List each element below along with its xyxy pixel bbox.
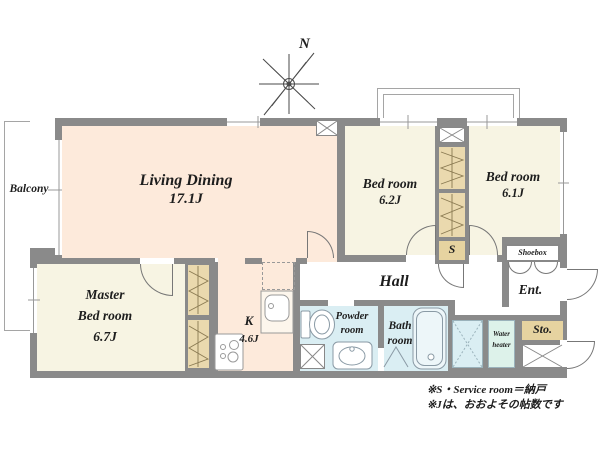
entry-tile xyxy=(452,320,483,368)
door-gap xyxy=(328,300,354,306)
storage-label: Sto. xyxy=(518,323,567,337)
shoebox-label: Shoebox xyxy=(505,248,560,257)
master-closet-lower xyxy=(188,320,209,368)
door-gap xyxy=(469,255,497,262)
hall-label: Hall xyxy=(354,273,434,291)
wall xyxy=(30,258,140,264)
floor-plan: N Balcony Living Dining 17.1J Bed room 6… xyxy=(0,0,600,450)
wh-2: heater xyxy=(492,341,510,349)
bedroom1-name: Bed room xyxy=(363,176,417,191)
overhang-outline-inner xyxy=(383,94,514,120)
powder-1: Powder xyxy=(336,311,369,322)
compass-north-label: N xyxy=(299,36,310,53)
master-bedroom-label: Master Bed room 6.7J xyxy=(40,285,170,348)
wall xyxy=(502,237,567,244)
wall xyxy=(55,126,62,140)
wh-1: Water xyxy=(493,330,510,338)
wall xyxy=(560,118,567,132)
wall xyxy=(30,371,567,378)
bedroom1-label: Bed room 6.2J xyxy=(345,176,435,207)
wall xyxy=(337,118,345,262)
bedroom2-label: Bed room 6.1J xyxy=(466,169,560,200)
closet-upper xyxy=(439,147,465,189)
wall xyxy=(337,255,406,262)
master-name-1: Master xyxy=(85,287,124,302)
master-name-2: Bed room xyxy=(78,308,132,323)
duct-box-ld xyxy=(316,120,338,136)
bedroom2-name: Bed room xyxy=(486,169,540,184)
water-heater-label: Water heater xyxy=(487,329,516,350)
window-gap xyxy=(30,268,37,333)
window-gap xyxy=(467,118,517,126)
washer-box xyxy=(300,344,325,369)
living-dining-name: Living Dining xyxy=(140,172,233,189)
wall xyxy=(55,118,227,126)
master-size: 6.7J xyxy=(93,329,117,344)
entrance-label: Ent. xyxy=(503,282,558,298)
wall xyxy=(354,300,455,306)
powder-room-label: Powder room xyxy=(328,310,376,338)
door-arc-entrance xyxy=(567,269,598,300)
window-gap xyxy=(55,140,62,255)
balcony-label: Balcony xyxy=(7,183,51,196)
trunk-box xyxy=(522,344,563,368)
window-gap xyxy=(560,132,567,234)
door-arc-trunk xyxy=(567,341,595,369)
wall xyxy=(211,262,218,371)
door-gap xyxy=(560,340,567,367)
window-gap xyxy=(227,118,260,126)
wall xyxy=(300,300,328,306)
bath-2: room xyxy=(388,335,413,347)
notes: ※S・Service room＝納戸 ※Jは、おおよその帖数です xyxy=(427,383,563,413)
bath-room-label: Bath room xyxy=(378,319,422,349)
bedroom1-size: 6.2J xyxy=(379,193,401,207)
wall xyxy=(245,258,262,264)
note-line-1: ※S・Service room＝納戸 xyxy=(427,384,546,396)
kitchen-label: K 4.6J xyxy=(220,313,278,347)
door-gap xyxy=(560,268,567,301)
duct-box xyxy=(439,127,465,143)
ld-door-opening xyxy=(307,258,337,262)
closet-lower xyxy=(439,193,465,237)
kitchen-size: 4.6J xyxy=(239,333,258,345)
kitchen-counter-dashed xyxy=(262,262,295,290)
powder-2: room xyxy=(341,325,364,336)
service-room-label: S xyxy=(439,243,465,257)
master-closet-upper xyxy=(188,265,209,315)
bedroom2-size: 6.1J xyxy=(502,186,524,200)
living-dining-size: 17.1J xyxy=(169,191,203,207)
window-gap xyxy=(380,118,437,126)
living-dining-label: Living Dining 17.1J xyxy=(96,172,276,209)
door-gap xyxy=(406,255,435,262)
note-line-2: ※Jは、おおよその帖数です xyxy=(427,399,563,411)
bath-1: Bath xyxy=(388,320,411,332)
kitchen-name: K xyxy=(245,313,254,328)
